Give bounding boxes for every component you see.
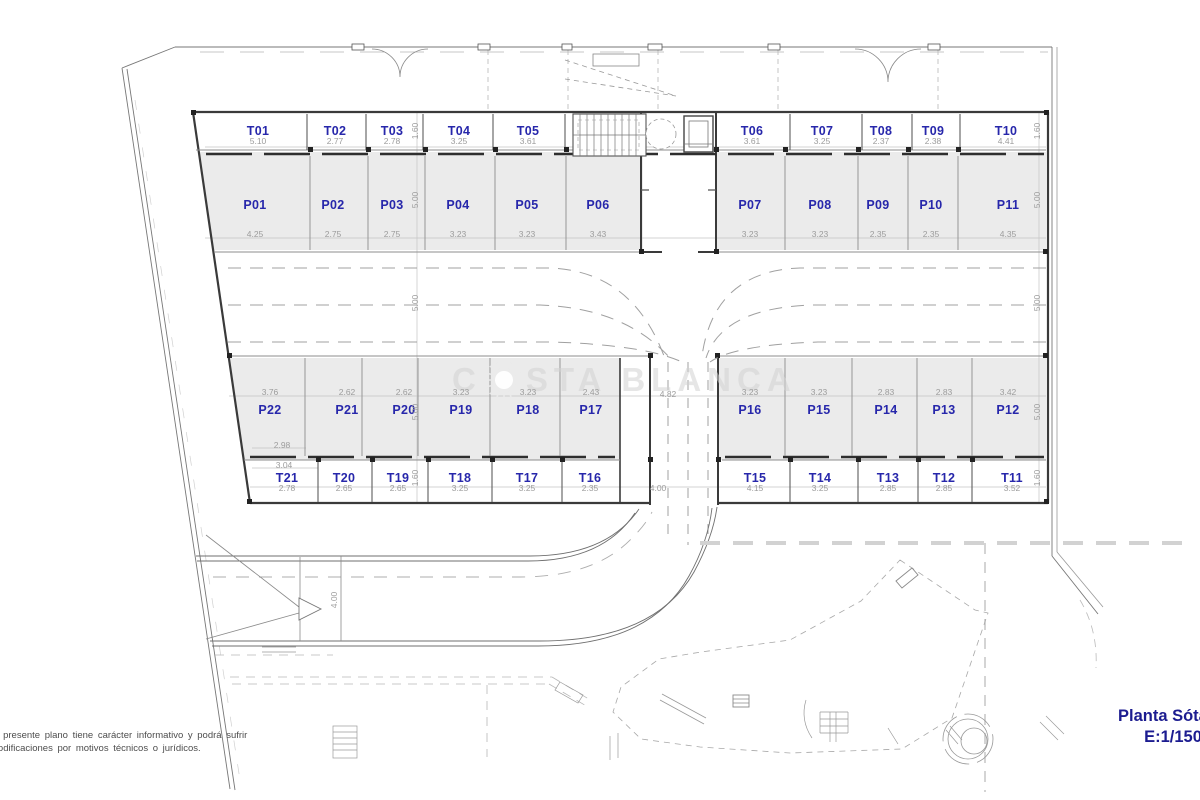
stall-T17-dim: 3.25: [519, 483, 536, 493]
stall-P04-dim: 3.23: [450, 229, 467, 239]
stall-P14-dim: 2.83: [878, 387, 895, 397]
stall-P14-label: P14: [874, 403, 897, 417]
stall-T03-dim: 2.78: [384, 136, 401, 146]
stall-T05-dim: 3.61: [520, 136, 537, 146]
floor-plan-page: C STA BLANCA T01 5.10 T02 2.77 T03 2.78 …: [0, 0, 1200, 800]
stall-T13-dim: 2.85: [880, 483, 897, 493]
disclaimer-note: El presente plano tiene carácter informa…: [0, 729, 282, 755]
stall-P06-label: P06: [586, 198, 609, 212]
stall-P18-label: P18: [516, 403, 539, 417]
stall-T09-dim: 2.38: [925, 136, 942, 146]
stall-P03-label: P03: [380, 198, 403, 212]
stall-P19-label: P19: [449, 403, 472, 417]
title-block: Planta Sótano E:1/150: [1088, 706, 1200, 748]
stall-T21-dim: 2.78: [279, 483, 296, 493]
floor-plan-drawing: [0, 0, 1200, 800]
p22-inner-dim: 2.98: [274, 440, 291, 450]
stall-P09-label: P09: [866, 198, 889, 212]
vdim-left-5: 1.60: [410, 470, 420, 487]
stall-P01-label: P01: [243, 198, 266, 212]
stall-P16-label: P16: [738, 403, 761, 417]
stall-P05-dim: 3.23: [519, 229, 536, 239]
stall-T08-dim: 2.37: [873, 136, 890, 146]
stall-P22-label: P22: [258, 403, 281, 417]
stall-P11-label: P11: [997, 198, 1019, 212]
top-corridor: [352, 44, 940, 110]
stall-P13-dim: 2.83: [936, 387, 953, 397]
ramp-entry-dim: 4.00: [650, 483, 667, 493]
stall-P02-dim: 2.75: [325, 229, 342, 239]
stall-P21-dim: 2.62: [339, 387, 356, 397]
stall-P10-dim: 2.35: [923, 229, 940, 239]
vdim-right-4: 5.00: [1032, 404, 1042, 421]
stall-P21-label: P21: [335, 403, 358, 417]
plan-scale: E:1/150: [1088, 727, 1200, 748]
stall-T01-dim: 5.10: [250, 136, 267, 146]
stall-P10-label: P10: [919, 198, 942, 212]
vdim-left-3: 5.00: [410, 295, 420, 312]
stall-P20-dim: 2.62: [396, 387, 413, 397]
stall-T18-dim: 3.25: [452, 483, 469, 493]
stall-T06-dim: 3.61: [744, 136, 761, 146]
bench: [733, 695, 749, 707]
stall-P22-dim: 3.76: [262, 387, 279, 397]
stall-P15-dim: 3.23: [811, 387, 828, 397]
stall-P11-dim: 4.35: [1000, 229, 1017, 239]
stall-P07-dim: 3.23: [742, 229, 759, 239]
stall-T07-dim: 3.25: [814, 136, 831, 146]
stall-P17-dim: 2.43: [583, 387, 600, 397]
vdim-right-2: 5.00: [1032, 192, 1042, 209]
bench: [896, 568, 918, 588]
road-width-dim: 4.00: [329, 592, 339, 609]
vdim-right-3: 5.00: [1032, 295, 1042, 312]
stall-T14-dim: 3.25: [812, 483, 829, 493]
access-road: [196, 507, 717, 652]
stall-T16-dim: 2.35: [582, 483, 599, 493]
stall-P01-dim: 4.25: [247, 229, 264, 239]
vdim-right-5: 1.60: [1032, 470, 1042, 487]
stall-P04-label: P04: [446, 198, 469, 212]
stall-P08-dim: 3.23: [812, 229, 829, 239]
stall-P09-dim: 2.35: [870, 229, 887, 239]
plan-title: Planta Sótano: [1088, 706, 1200, 727]
stall-P18-dim: 3.23: [520, 387, 537, 397]
vdim-left-2: 5.00: [410, 192, 420, 209]
vdim-left-4: 5.00: [410, 404, 420, 421]
stall-T11-dim: 3.52: [1004, 483, 1021, 493]
stall-P03-dim: 2.75: [384, 229, 401, 239]
stall-T02-dim: 2.77: [327, 136, 344, 146]
stall-P02-label: P02: [321, 198, 344, 212]
t21-outer-dim: 3.04: [276, 460, 293, 470]
stall-T19-dim: 2.65: [390, 483, 407, 493]
stall-T12-dim: 2.85: [936, 483, 953, 493]
upper-floor-projection: [215, 655, 1064, 760]
stall-P12-dim: 3.42: [1000, 387, 1017, 397]
vdim-left-1: 1.60: [410, 123, 420, 140]
stall-P15-label: P15: [807, 403, 830, 417]
disclaimer-line-1: El presente plano tiene carácter informa…: [0, 729, 282, 742]
stall-P17-label: P17: [579, 403, 602, 417]
stall-P12-label: P12: [996, 403, 1019, 417]
stall-T15-dim: 4.15: [747, 483, 764, 493]
stall-T04-dim: 3.25: [451, 136, 468, 146]
stall-P07-label: P07: [738, 198, 761, 212]
stall-T10-dim: 4.41: [998, 136, 1015, 146]
garden-area: [613, 543, 1190, 792]
stall-P08-label: P08: [808, 198, 831, 212]
vdim-right-1: 1.60: [1032, 123, 1042, 140]
stall-P13-label: P13: [932, 403, 955, 417]
ramp-arrow: [299, 598, 321, 620]
stall-P05-label: P05: [515, 198, 538, 212]
stall-P16-dim: 3.23: [742, 387, 759, 397]
stall-P06-dim: 3.43: [590, 229, 607, 239]
stall-P19-dim: 3.23: [453, 387, 470, 397]
stall-T20-dim: 2.65: [336, 483, 353, 493]
disclaimer-line-2: modificaciones por motivos técnicos o ju…: [0, 742, 282, 755]
ramp-width-dim: 4.82: [660, 389, 677, 399]
